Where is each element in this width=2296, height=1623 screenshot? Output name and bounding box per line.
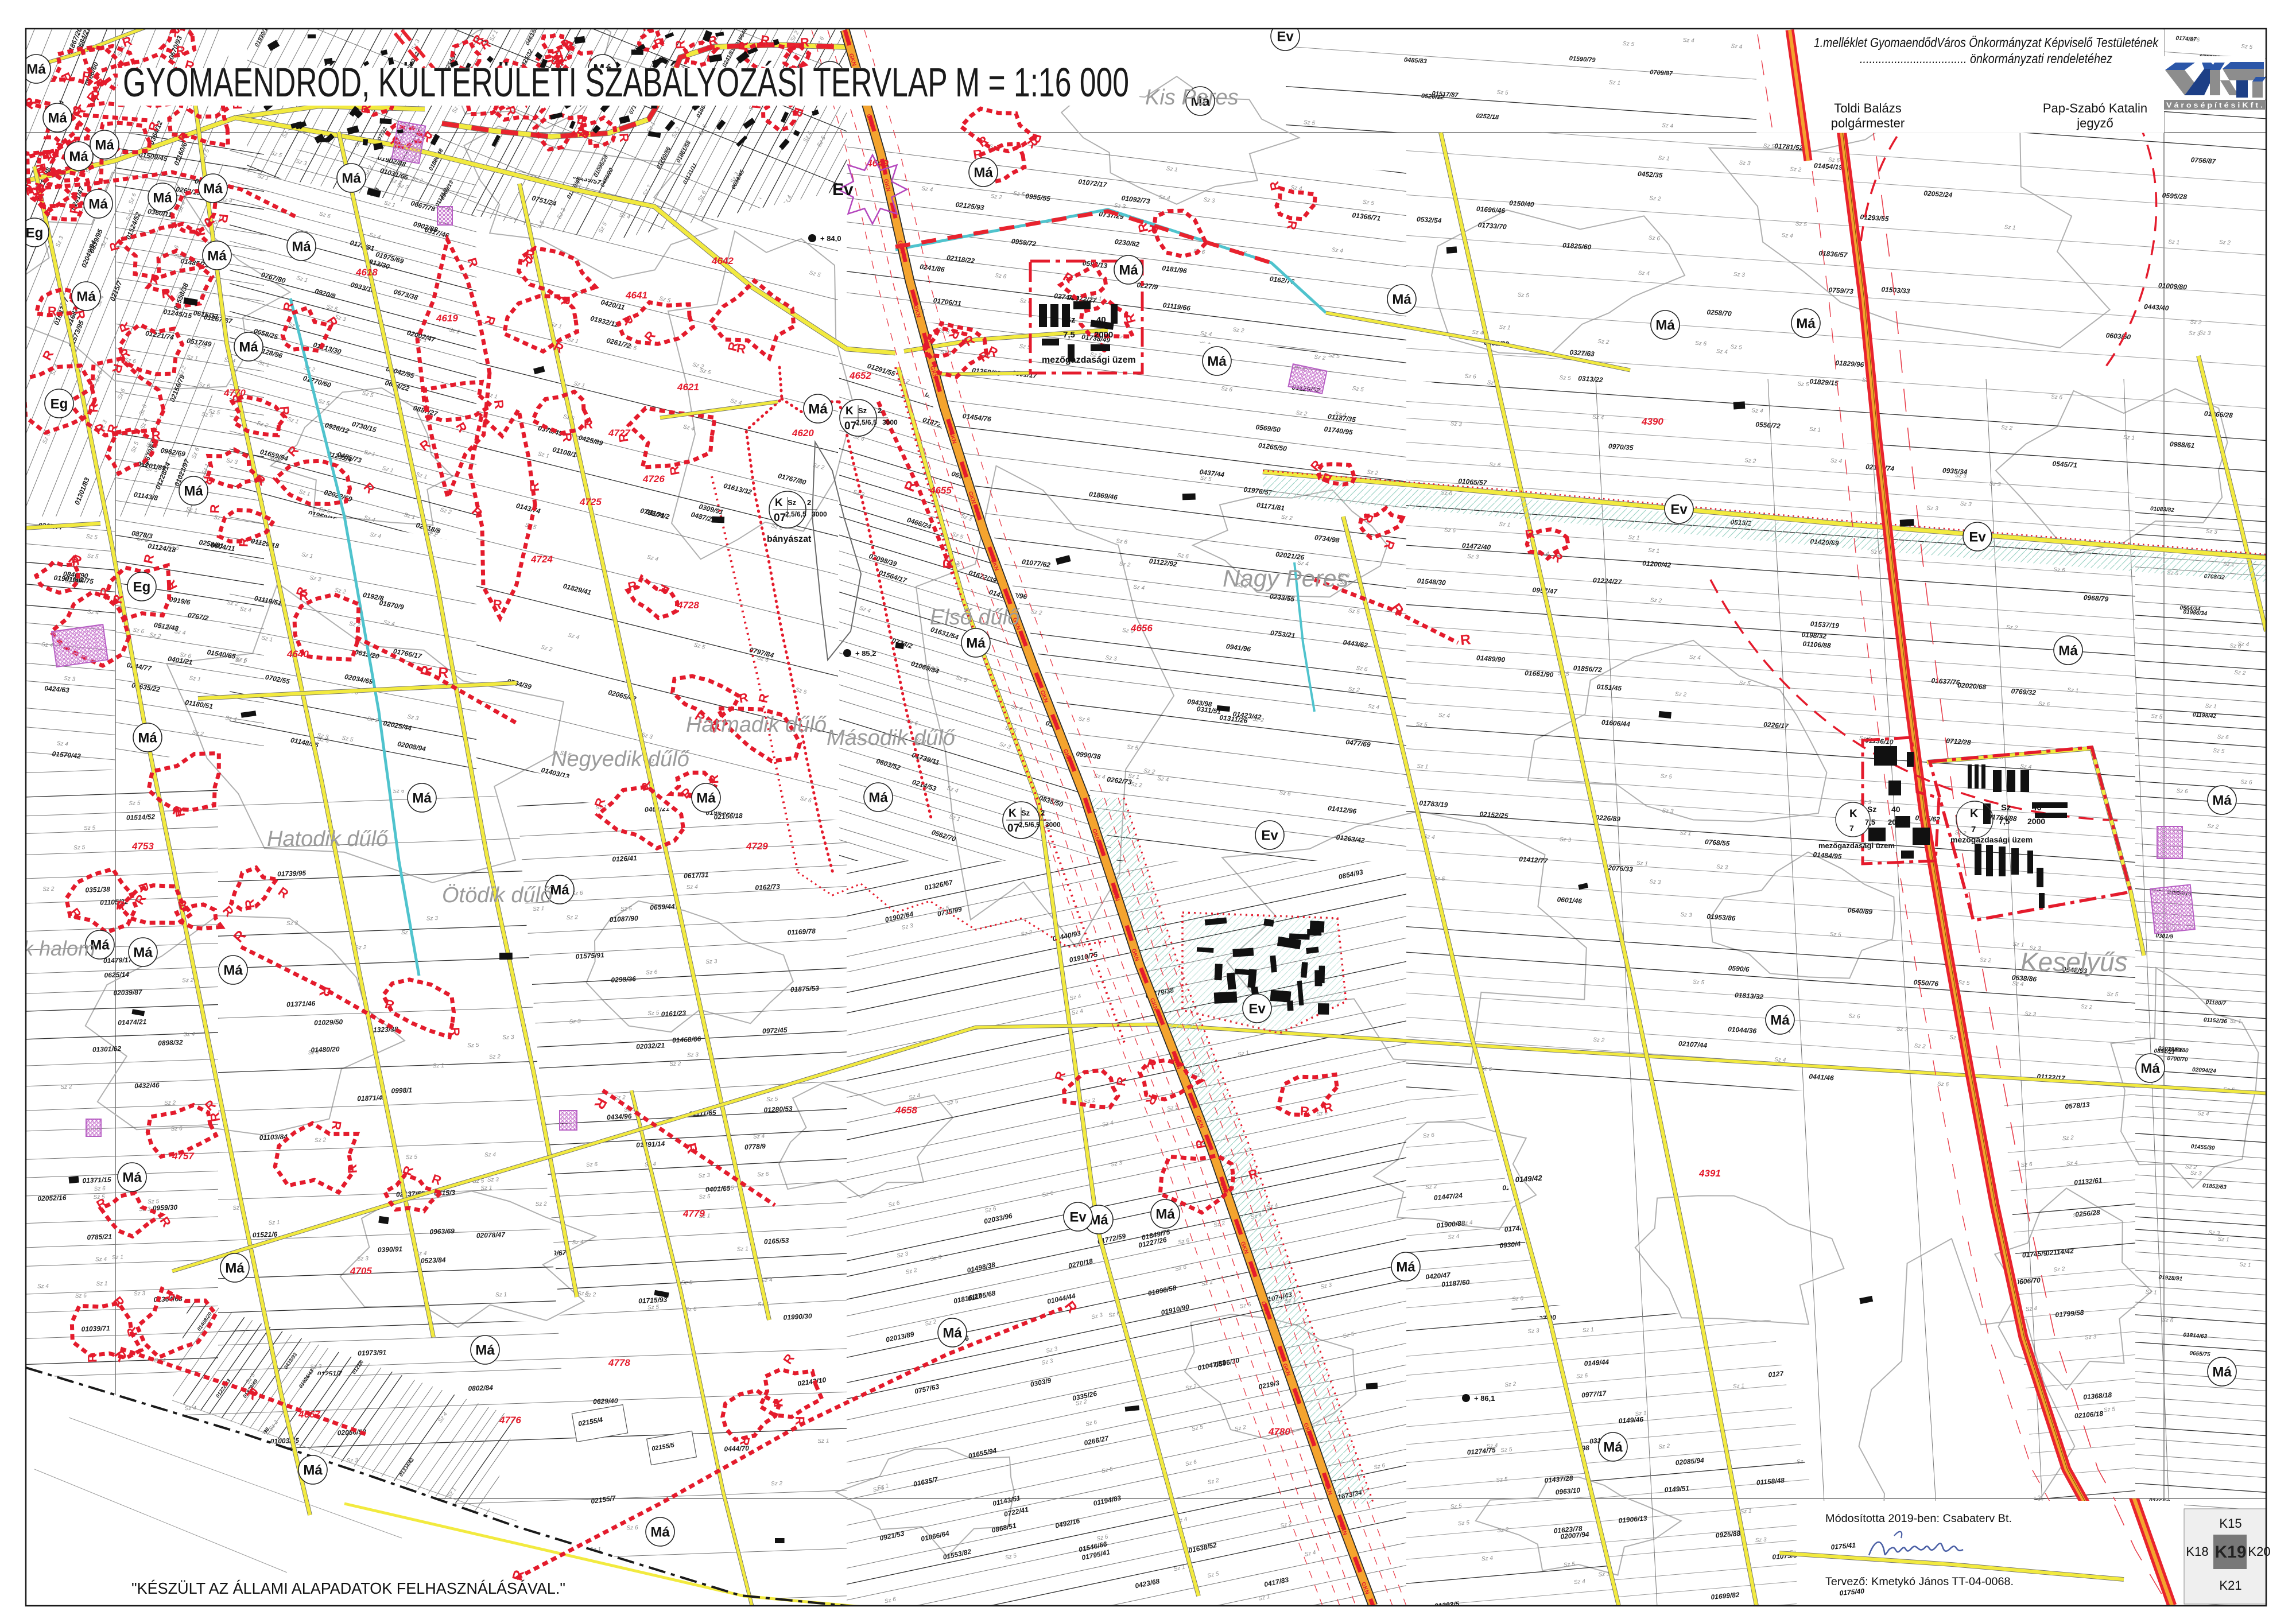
svg-text:2,5/6,5: 2,5/6,5: [856, 418, 877, 426]
svg-text:mezőgazdasági üzem: mezőgazdasági üzem: [1950, 835, 2033, 844]
svg-text:02052/16: 02052/16: [37, 1194, 67, 1203]
svg-text:"KÉSZÜLT AZ ÁLLAMI ALAPADATOK: "KÉSZÜLT AZ ÁLLAMI ALAPADATOK FELHASZNÁL…: [131, 1579, 565, 1597]
svg-text:Sz 5: Sz 5: [1763, 143, 1775, 150]
svg-text:Sz 4: Sz 4: [183, 1031, 195, 1038]
svg-text:Sz 5: Sz 5: [2151, 713, 2163, 720]
svg-text:2: 2: [807, 498, 811, 507]
svg-text:01973/91: 01973/91: [358, 1348, 387, 1357]
svg-text:R: R: [492, 596, 503, 612]
svg-text:jegyző: jegyző: [2076, 116, 2113, 130]
svg-text:Sz 6: Sz 6: [646, 969, 658, 976]
svg-text:Sz 2: Sz 2: [1658, 1443, 1670, 1450]
svg-text:01029/50: 01029/50: [314, 1018, 343, 1027]
svg-text:Sz 6: Sz 6: [2188, 36, 2200, 43]
svg-text:R: R: [736, 41, 751, 51]
svg-text:Sz 1: Sz 1: [1609, 79, 1621, 86]
svg-text:Sz 1: Sz 1: [1733, 1383, 1745, 1390]
svg-text:0972/45: 0972/45: [762, 1026, 788, 1035]
svg-text:Sz 5: Sz 5: [1563, 1561, 1575, 1568]
svg-text:Sz 1: Sz 1: [268, 1220, 280, 1226]
svg-text:R: R: [299, 588, 309, 603]
svg-text:Sz 4: Sz 4: [1731, 43, 1743, 50]
svg-text:0162/73: 0162/73: [755, 883, 780, 892]
svg-text:Ev: Ev: [1969, 529, 1986, 545]
svg-text:4655: 4655: [929, 485, 952, 496]
svg-text:2,5/6,5: 2,5/6,5: [1019, 821, 1040, 829]
svg-text:Sz 1: Sz 1: [1680, 830, 1692, 837]
svg-text:Má: Má: [1770, 1012, 1790, 1028]
svg-text:Sz 3: Sz 3: [134, 1291, 146, 1298]
svg-text:Sz 3: Sz 3: [1649, 879, 1661, 886]
svg-text:Sz: Sz: [858, 406, 867, 415]
svg-text:Ev: Ev: [1261, 828, 1278, 843]
svg-text:3000: 3000: [882, 418, 898, 426]
svg-text:R: R: [559, 296, 573, 305]
svg-text:Má: Má: [292, 239, 311, 254]
svg-text:R: R: [448, 1027, 463, 1036]
svg-text:Sz 4: Sz 4: [1592, 414, 1604, 421]
svg-text:02078/47: 02078/47: [476, 1230, 506, 1240]
svg-text:Sz 1: Sz 1: [817, 1438, 829, 1445]
svg-text:Sz 1: Sz 1: [2123, 434, 2135, 441]
svg-text:R: R: [345, 1164, 360, 1174]
svg-text:Má: Má: [550, 882, 569, 898]
svg-text:4724: 4724: [530, 554, 553, 565]
svg-text:K19: K19: [2214, 1543, 2246, 1562]
svg-text:4728: 4728: [677, 600, 699, 611]
svg-text:4779: 4779: [682, 1208, 705, 1219]
svg-text:Sz 4: Sz 4: [1781, 232, 1793, 239]
svg-text:Sz 6: Sz 6: [1848, 1013, 1860, 1020]
svg-text:Sz 4: Sz 4: [1448, 1233, 1460, 1241]
svg-text:Sz 2: Sz 2: [1650, 597, 1662, 604]
svg-text:Sz 1: Sz 1: [1658, 155, 1670, 162]
svg-text:0126/41: 0126/41: [612, 854, 637, 863]
svg-text:Sz 3: Sz 3: [64, 675, 76, 683]
svg-text:Sz 5: Sz 5: [1304, 119, 1316, 126]
svg-text:Sz 1: Sz 1: [1628, 534, 1640, 541]
svg-text:Má: Má: [203, 181, 223, 196]
svg-text:R: R: [673, 40, 688, 49]
svg-text:Sz 2: Sz 2: [2053, 1266, 2065, 1273]
svg-text:4642: 4642: [711, 255, 734, 266]
svg-text:01739/95: 01739/95: [277, 869, 307, 878]
svg-text:Sz: Sz: [2001, 803, 2011, 813]
svg-text:4620: 4620: [792, 428, 814, 438]
svg-text:01875/53: 01875/53: [790, 984, 820, 994]
svg-text:Sz 1: Sz 1: [2067, 687, 2079, 694]
svg-text:Sz 1: Sz 1: [96, 1280, 107, 1287]
svg-text:7: 7: [1971, 825, 1976, 834]
svg-text:Sz 3: Sz 3: [2199, 329, 2211, 336]
svg-text:0629/40: 0629/40: [593, 1397, 618, 1406]
svg-text:Sz 4: Sz 4: [37, 1283, 49, 1290]
svg-text:R: R: [151, 428, 161, 442]
svg-text:Sz 3: Sz 3: [502, 1034, 514, 1041]
svg-text:Hatodik dűlő: Hatodik dűlő: [267, 827, 389, 851]
svg-text:Sz 1: Sz 1: [2205, 703, 2217, 710]
svg-text:Sz 3: Sz 3: [2205, 529, 2217, 535]
svg-text:Sz 3: Sz 3: [1960, 501, 1972, 508]
svg-text:01990/30: 01990/30: [783, 1312, 812, 1322]
svg-text:07: 07: [1007, 822, 1019, 834]
svg-text:Sz: Sz: [1867, 805, 1876, 814]
svg-text:Sz 1: Sz 1: [495, 1292, 507, 1299]
svg-text:Sz 5: Sz 5: [1660, 773, 1672, 780]
svg-text:K: K: [846, 405, 854, 417]
svg-text:Sz 6: Sz 6: [1464, 373, 1476, 380]
svg-text:0898/32: 0898/32: [158, 1038, 183, 1047]
svg-text:Má: Má: [1155, 1206, 1175, 1222]
svg-text:K: K: [775, 497, 783, 509]
svg-text:Ev: Ev: [1248, 1001, 1266, 1016]
svg-text:4658: 4658: [895, 1105, 917, 1116]
svg-text:0298/36: 0298/36: [611, 974, 636, 984]
svg-text:02039/87: 02039/87: [113, 988, 143, 997]
svg-text:Sz 1: Sz 1: [1636, 860, 1648, 867]
svg-text:Sz 2: Sz 2: [2081, 1004, 2093, 1011]
svg-text:Sz 1: Sz 1: [2229, 1018, 2241, 1025]
svg-text:4641: 4641: [625, 290, 647, 301]
svg-text:Sz 4: Sz 4: [572, 1239, 584, 1246]
svg-text:0617/31: 0617/31: [684, 871, 709, 880]
svg-text:4725: 4725: [579, 496, 602, 507]
svg-text:Sz 4: Sz 4: [1751, 407, 1763, 414]
svg-text:Második dűlő: Második dűlő: [827, 726, 956, 750]
svg-text:Sz 5: Sz 5: [467, 1042, 479, 1049]
svg-text:7,5: 7,5: [1865, 818, 1875, 826]
svg-text:Má: Má: [184, 483, 203, 499]
svg-text:Sz 5: Sz 5: [148, 1198, 160, 1205]
svg-text:R: R: [277, 406, 292, 416]
svg-text:K21: K21: [2219, 1578, 2241, 1593]
svg-text:0165/53: 0165/53: [764, 1236, 789, 1245]
svg-text:Ötödik dűlő: Ötödik dűlő: [442, 883, 553, 907]
svg-text:Sz 6: Sz 6: [1937, 1081, 1949, 1088]
svg-text:Negyedik dűlő: Negyedik dűlő: [551, 747, 690, 771]
svg-text:R: R: [1300, 1104, 1310, 1119]
svg-text:Sz 5: Sz 5: [2107, 991, 2119, 998]
svg-text:K: K: [1849, 808, 1857, 820]
svg-text:4618: 4618: [355, 267, 378, 278]
svg-text:K: K: [1970, 807, 1979, 820]
svg-text:Sz 4: Sz 4: [2197, 1111, 2209, 1117]
svg-text:Má: Má: [225, 1260, 245, 1276]
svg-text:Sz 3: Sz 3: [2085, 1334, 2097, 1341]
svg-text:R: R: [1460, 631, 1472, 649]
svg-text:4757: 4757: [172, 1151, 195, 1162]
svg-text:Sz 5: Sz 5: [722, 1185, 734, 1192]
svg-text:Sz 5: Sz 5: [1559, 375, 1571, 382]
svg-text:Sz 2: Sz 2: [1597, 339, 1609, 345]
svg-text:Sz 1: Sz 1: [1648, 548, 1660, 554]
svg-text:Sz 5: Sz 5: [1500, 1446, 1512, 1454]
svg-text:Sz 6: Sz 6: [1489, 461, 1501, 468]
svg-text:Sz 4: Sz 4: [2020, 763, 2032, 770]
svg-text:Sz 6: Sz 6: [1576, 1373, 1588, 1380]
svg-text:07: 07: [844, 420, 856, 432]
svg-text:Má: Má: [122, 1170, 142, 1185]
svg-text:Má: Má: [650, 1524, 670, 1540]
svg-text:Sz 4: Sz 4: [1682, 37, 1694, 44]
svg-text:01521/6: 01521/6: [253, 1230, 278, 1240]
svg-text:Sz 2: Sz 2: [42, 886, 55, 893]
svg-text:Sz 4: Sz 4: [2237, 641, 2250, 648]
svg-text:7,5: 7,5: [1999, 817, 2010, 826]
svg-text:Sz 5: Sz 5: [1958, 980, 1970, 987]
svg-text:Sz: Sz: [788, 498, 797, 507]
svg-text:Sz 6: Sz 6: [2176, 788, 2188, 795]
svg-text:Sz 2: Sz 2: [669, 1061, 681, 1067]
svg-text:Sz: Sz: [1021, 809, 1030, 817]
svg-text:Sz 4: Sz 4: [1481, 1555, 1494, 1563]
svg-text:2000: 2000: [1094, 330, 1113, 340]
svg-text:01715/93: 01715/93: [638, 1295, 668, 1305]
svg-text:Sz 4: Sz 4: [1662, 122, 1674, 129]
svg-text:Sz 5: Sz 5: [1730, 344, 1742, 351]
svg-text:R: R: [86, 403, 100, 413]
svg-text:Sz 3: Sz 3: [2024, 1011, 2037, 1018]
svg-text:R: R: [940, 558, 956, 569]
svg-text:Sz 5: Sz 5: [620, 906, 633, 913]
svg-text:Sz 1: Sz 1: [2145, 1289, 2157, 1296]
svg-text:Sz 5: Sz 5: [766, 1096, 778, 1103]
svg-text:Má: Má: [2058, 643, 2078, 658]
svg-text:Keselyűs: Keselyűs: [2020, 947, 2128, 977]
svg-text:Má: Má: [966, 635, 986, 651]
svg-text:Ev: Ev: [1670, 502, 1688, 517]
svg-text:Sz 3: Sz 3: [426, 915, 439, 922]
svg-text:Sz 3: Sz 3: [1662, 807, 1674, 814]
svg-text:Sz 6: Sz 6: [757, 1171, 769, 1178]
svg-text:Ev: Ev: [832, 180, 854, 199]
svg-text:Módosította 2019-ben: Csabater: Módosította 2019-ben: Csabaterv Bt.: [1825, 1513, 2012, 1525]
svg-text:R: R: [800, 35, 809, 50]
svg-text:01491/14: 01491/14: [636, 1140, 665, 1150]
svg-text:2000: 2000: [1888, 818, 1905, 826]
svg-text:Sz 3: Sz 3: [1896, 1026, 1908, 1033]
svg-text:Sz 6: Sz 6: [2217, 734, 2229, 741]
svg-text:Sz 5: Sz 5: [1496, 90, 1508, 96]
svg-text:01301/62: 01301/62: [92, 1045, 122, 1054]
svg-text:R: R: [207, 504, 222, 514]
svg-text:7: 7: [1849, 824, 1854, 833]
svg-text:R: R: [616, 133, 631, 143]
svg-text:Má: Má: [1119, 262, 1138, 278]
svg-text:R: R: [236, 537, 251, 548]
svg-text:0659/44: 0659/44: [650, 902, 675, 911]
svg-text:Sz 4: Sz 4: [2066, 1160, 2078, 1167]
svg-text:Sz 4: Sz 4: [56, 740, 68, 748]
svg-text:V á r o s é p í t é s i K f: V á r o s é p í t é s i K f t .: [2166, 102, 2263, 110]
svg-text:Sz 2: Sz 2: [2006, 624, 2018, 631]
svg-text:K20: K20: [2248, 1544, 2270, 1559]
svg-text:Sz 1: Sz 1: [1582, 1326, 1594, 1334]
svg-text:Sz 2: Sz 2: [1649, 195, 1661, 202]
svg-text:R: R: [48, 304, 57, 319]
svg-text:Má: Má: [1207, 354, 1227, 369]
svg-text:Sz 4: Sz 4: [1638, 270, 1650, 277]
svg-text:Sz 4: Sz 4: [41, 642, 53, 649]
svg-text:Sz 5: Sz 5: [647, 1304, 660, 1311]
svg-text:..............................: .................................. önkor…: [1860, 51, 2112, 66]
svg-text:4640: 4640: [286, 649, 309, 659]
svg-text:Sz 2: Sz 2: [489, 1054, 501, 1061]
svg-text:Sz 3: Sz 3: [1560, 836, 1572, 843]
svg-text:Má: Má: [974, 165, 993, 180]
svg-text:Sz 6: Sz 6: [1444, 527, 1456, 534]
svg-text:Má: Má: [153, 190, 172, 205]
svg-text:mezőgazdasági üzem: mezőgazdasági üzem: [1818, 841, 1895, 850]
svg-text:Má: Má: [26, 61, 46, 77]
svg-text:02032/21: 02032/21: [636, 1041, 665, 1051]
svg-text:Sz 6: Sz 6: [626, 1525, 638, 1532]
svg-text:2,5/6,5: 2,5/6,5: [785, 510, 806, 518]
svg-text:Má: Má: [2140, 1061, 2160, 1076]
svg-text:4776: 4776: [499, 1415, 521, 1426]
svg-text:4780: 4780: [1268, 1426, 1290, 1437]
svg-text:Sz 5: Sz 5: [1415, 721, 1428, 728]
svg-text:Sz 6: Sz 6: [1422, 1132, 1434, 1140]
svg-text:0434/96: 0434/96: [607, 1112, 632, 1121]
svg-text:0963/69: 0963/69: [429, 1227, 455, 1236]
svg-text:0301/9: 0301/9: [2155, 933, 2174, 940]
svg-text:4656: 4656: [1130, 623, 1153, 634]
svg-text:Sz 5: Sz 5: [1496, 1477, 1508, 1484]
svg-text:Má: Má: [303, 1462, 323, 1478]
svg-text:Sz 4: Sz 4: [87, 609, 99, 616]
svg-text:Sz 6: Sz 6: [586, 1162, 598, 1168]
svg-text:R: R: [115, 898, 126, 913]
svg-text:Sz 3: Sz 3: [687, 1052, 699, 1059]
svg-text:07: 07: [774, 512, 786, 524]
svg-text:Sz 6: Sz 6: [2240, 779, 2252, 786]
svg-text:Sz 5: Sz 5: [1623, 41, 1635, 48]
svg-text:Sz 3: Sz 3: [1755, 1536, 1767, 1544]
svg-text:0161/23: 0161/23: [661, 1009, 686, 1018]
svg-text:Sz 1: Sz 1: [1598, 1571, 1610, 1578]
svg-text:Sz 1: Sz 1: [1499, 521, 1511, 528]
svg-text:4652: 4652: [849, 370, 871, 381]
svg-text:40: 40: [2032, 803, 2042, 813]
svg-text:Eg: Eg: [133, 579, 151, 595]
svg-text:Sz 5: Sz 5: [2241, 44, 2253, 51]
svg-text:Sz 2: Sz 2: [2001, 425, 2013, 432]
svg-text:4753: 4753: [131, 841, 154, 852]
svg-text:Má: Má: [1796, 316, 1816, 331]
svg-text:Má: Má: [138, 730, 157, 746]
svg-text:Sz 1: Sz 1: [2168, 239, 2180, 246]
svg-text:R: R: [584, 417, 593, 431]
svg-text:Sz 3: Sz 3: [286, 920, 298, 927]
svg-text:Sz 6: Sz 6: [1695, 340, 1707, 347]
svg-text:Sz 4: Sz 4: [2012, 981, 2024, 988]
svg-text:3000: 3000: [1045, 821, 1061, 829]
svg-text:Má: Má: [69, 149, 88, 164]
svg-text:Sz 3: Sz 3: [357, 1256, 369, 1263]
svg-text:2000: 2000: [2027, 817, 2045, 826]
svg-text:Sz 5: Sz 5: [1797, 381, 1809, 388]
svg-text:Sz 2: Sz 2: [1914, 1043, 1926, 1050]
svg-text:+ 86,1: + 86,1: [1474, 1394, 1495, 1403]
svg-text:Sz 4: Sz 4: [95, 1256, 107, 1263]
svg-text:Eg: Eg: [51, 396, 68, 411]
svg-text:R: R: [560, 432, 575, 442]
svg-text:Ev: Ev: [1069, 1209, 1087, 1225]
svg-text:Tervező: Kmetykó János TT-04-0: Tervező: Kmetykó János TT-04-0068.: [1825, 1576, 2014, 1588]
svg-text:Toldi Balázs: Toldi Balázs: [1834, 101, 1901, 115]
svg-text:k halom: k halom: [23, 937, 95, 960]
svg-text:Sz 6: Sz 6: [2020, 1162, 2033, 1169]
svg-text:Má: Má: [2212, 793, 2232, 808]
svg-text:Sz 4: Sz 4: [1461, 1220, 1473, 1227]
svg-text:Sz 3: Sz 3: [1467, 553, 1479, 560]
svg-text:mezőgazdasági üzem: mezőgazdasági üzem: [1042, 355, 1136, 365]
svg-text:Sz 5: Sz 5: [1795, 221, 1807, 228]
svg-text:Má: Má: [1655, 317, 1675, 333]
svg-text:01468/66: 01468/66: [672, 1035, 701, 1045]
svg-text:Sz 2: Sz 2: [1425, 1183, 1437, 1191]
svg-text:Sz 6: Sz 6: [2053, 566, 2065, 573]
svg-text:K18: K18: [2186, 1544, 2208, 1559]
svg-text:Sz 2: Sz 2: [1593, 1036, 1605, 1043]
svg-text:Harmadik dűlő: Harmadik dűlő: [686, 713, 827, 737]
svg-text:4727: 4727: [608, 428, 631, 438]
svg-text:Sz 2: Sz 2: [308, 1050, 320, 1057]
svg-text:Sz 3: Sz 3: [705, 958, 717, 965]
svg-text:R: R: [527, 482, 542, 492]
svg-text:Kis Peres: Kis Peres: [1145, 86, 1239, 110]
svg-text:0998/1: 0998/1: [391, 1086, 412, 1094]
svg-text:Sz 5: Sz 5: [647, 1010, 660, 1017]
svg-text:Sz 6: Sz 6: [75, 1292, 87, 1299]
svg-text:4390: 4390: [1641, 416, 1663, 427]
svg-text:Sz 2: Sz 2: [1675, 691, 1687, 698]
svg-text:Sz 5: Sz 5: [1450, 1503, 1462, 1511]
svg-text:0432/46: 0432/46: [134, 1081, 160, 1090]
svg-text:Sz 1: Sz 1: [433, 1063, 444, 1070]
svg-text:Má: Má: [1392, 292, 1411, 307]
svg-text:Má: Má: [412, 790, 432, 806]
svg-text:Sz 2: Sz 2: [1497, 1527, 1509, 1534]
svg-text:Sz 1: Sz 1: [2217, 1236, 2229, 1243]
svg-text:R: R: [161, 286, 172, 301]
svg-text:Má: Má: [696, 790, 716, 806]
svg-text:4770: 4770: [223, 387, 246, 398]
svg-text:R: R: [771, 1398, 786, 1408]
svg-text:Sz 3: Sz 3: [569, 1018, 581, 1025]
svg-text:Sz 3: Sz 3: [1739, 160, 1751, 166]
svg-text:Sz 2: Sz 2: [771, 1481, 783, 1488]
svg-text:Sz 2: Sz 2: [315, 1137, 327, 1144]
svg-text:Sz 3: Sz 3: [698, 1172, 710, 1179]
svg-text:Má: Má: [207, 248, 227, 263]
svg-text:Sz 5: Sz 5: [1739, 680, 1751, 687]
svg-text:Sz 5: Sz 5: [1517, 292, 1529, 299]
svg-text:Sz 1: Sz 1: [736, 1246, 748, 1253]
svg-text:Má: Má: [88, 196, 108, 212]
svg-text:Má: Má: [48, 110, 67, 126]
svg-text:Sz 4: Sz 4: [753, 1133, 765, 1140]
svg-text:0351/38: 0351/38: [85, 885, 110, 894]
svg-text:Sz 1: Sz 1: [1499, 324, 1511, 331]
svg-text:Sz 2: Sz 2: [2062, 1135, 2074, 1142]
svg-text:Má: Má: [223, 962, 243, 978]
svg-text:Sz 2: Sz 2: [2207, 823, 2219, 830]
svg-text:R: R: [329, 1120, 344, 1131]
svg-text:Sz 6: Sz 6: [2051, 394, 2063, 401]
svg-text:Sz 2: Sz 2: [2190, 319, 2202, 326]
